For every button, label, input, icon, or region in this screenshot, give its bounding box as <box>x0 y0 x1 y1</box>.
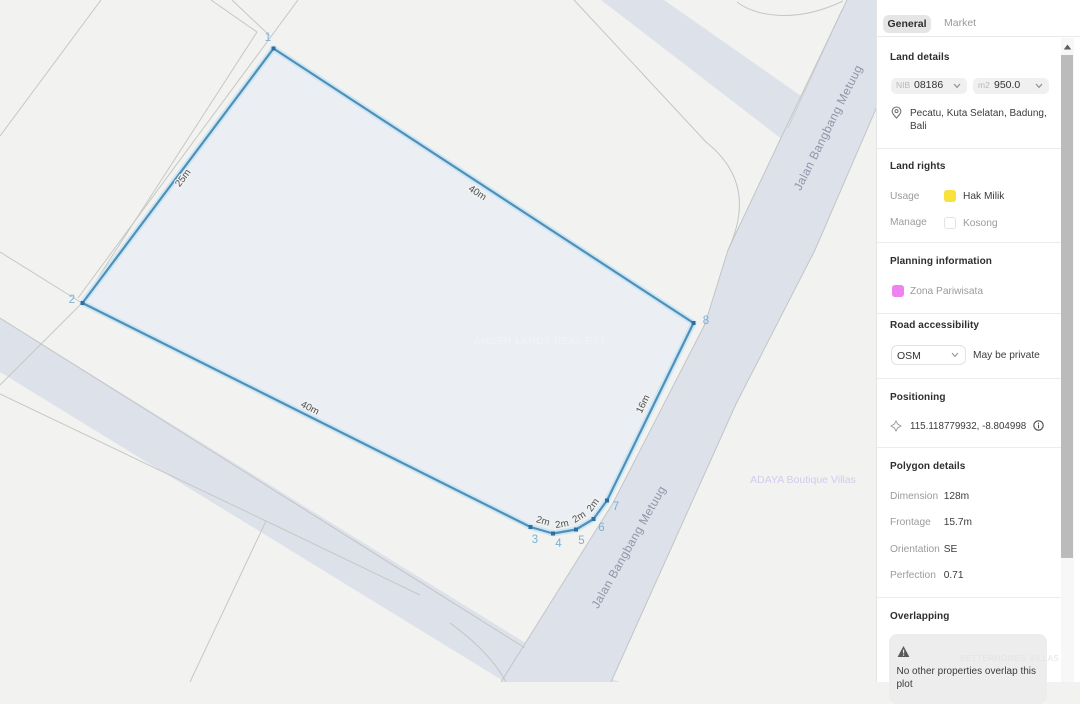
svg-text:1: 1 <box>265 32 271 44</box>
svg-text:4: 4 <box>555 538 562 550</box>
svg-text:AMBER LANDS REAL EST: AMBER LANDS REAL EST <box>474 336 606 347</box>
svg-text:5: 5 <box>578 535 584 547</box>
svg-text:3: 3 <box>532 534 538 546</box>
svg-text:ADAYA Boutique Villas: ADAYA Boutique Villas <box>750 474 856 486</box>
svg-text:6: 6 <box>598 522 604 534</box>
svg-text:2: 2 <box>69 294 75 306</box>
svg-text:8: 8 <box>703 315 709 327</box>
svg-text:7: 7 <box>613 501 619 513</box>
svg-text:2m: 2m <box>554 518 569 531</box>
